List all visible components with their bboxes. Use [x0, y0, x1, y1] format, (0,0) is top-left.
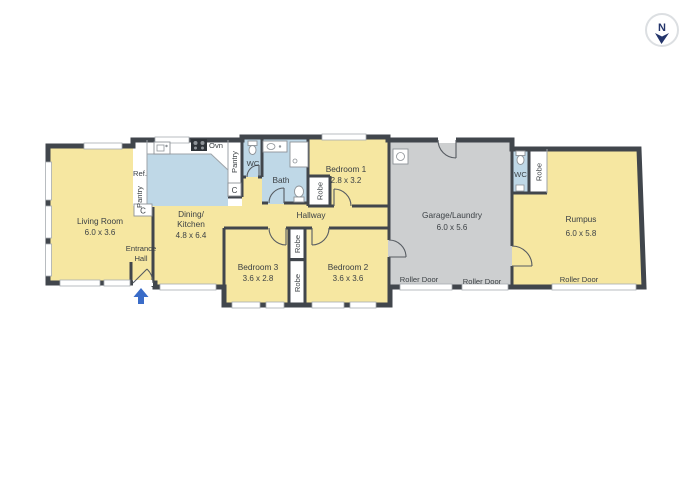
- robe-label: Robe: [293, 274, 302, 292]
- toilet-icon: [294, 186, 304, 202]
- shower-icon: [290, 142, 308, 167]
- entrance-hall-label: Entrance: [126, 244, 156, 253]
- toilet-icon: [248, 141, 257, 155]
- entrance-hall-label: Hall: [134, 254, 147, 263]
- laundry-tub-icon: [393, 149, 408, 164]
- window: [160, 284, 216, 290]
- cupboard-label: C: [232, 186, 238, 195]
- fridge-label: Ref.: [133, 169, 147, 178]
- footer: BARFOOT THOMPSON & 495 Great South Road,…: [0, 445, 700, 500]
- roller-door-label: Roller Door: [463, 277, 502, 286]
- window: [60, 280, 100, 286]
- rumpus-label: Rumpus: [566, 214, 597, 224]
- robe-label: Robe: [535, 163, 544, 181]
- oven-label: Ovn: [209, 141, 223, 150]
- window: [350, 302, 376, 308]
- living-room-dims: 6.0 x 3.6: [85, 228, 116, 237]
- kitchen-sink-icon: [154, 142, 170, 154]
- bath-vanity-icon: [263, 141, 287, 152]
- bedroom2-dims: 3.6 x 3.6: [333, 274, 364, 283]
- floorplan-canvas: Living Room 6.0 x 3.6 Entrance Hall Dini…: [0, 0, 700, 445]
- wc-label: WC: [247, 159, 260, 168]
- bedroom3-dims: 3.6 x 2.8: [243, 274, 274, 283]
- wc-label: WC: [514, 170, 527, 179]
- window: [312, 302, 344, 308]
- window: [46, 244, 52, 276]
- hallway-label: Hallway: [296, 210, 326, 220]
- window: [104, 280, 130, 286]
- bedroom3-label: Bedroom 3: [238, 262, 279, 272]
- cooktop-icon: [191, 139, 207, 151]
- dining-kitchen-label: Kitchen: [177, 219, 205, 229]
- bath-label: Bath: [272, 175, 289, 185]
- bedroom1-dims: 2.8 x 3.2: [331, 176, 362, 185]
- garage-side-door-opening: [438, 137, 456, 143]
- bedroom2-label: Bedroom 2: [328, 262, 369, 272]
- window: [46, 162, 52, 200]
- kitchen-floor: [147, 154, 228, 206]
- window: [46, 206, 52, 238]
- roller-door-opening: [400, 284, 452, 290]
- dining-kitchen-dims: 4.8 x 6.4: [176, 231, 207, 240]
- window: [232, 302, 260, 308]
- bedroom1-label: Bedroom 1: [326, 164, 367, 174]
- dining-kitchen-label: Dining/: [178, 209, 205, 219]
- compass-north-indicator: N: [646, 14, 678, 46]
- window: [266, 302, 284, 308]
- living-room-label: Living Room: [77, 216, 123, 226]
- window: [84, 143, 122, 149]
- roller-door-label: Roller Door: [400, 275, 439, 284]
- floorplan-page: Living Room 6.0 x 3.6 Entrance Hall Dini…: [0, 0, 700, 500]
- garage-dims: 6.0 x 5.6: [437, 223, 468, 232]
- entry-arrow-icon: [134, 288, 149, 304]
- roller-door-opening: [552, 284, 636, 290]
- robe-label: Robe: [316, 182, 325, 200]
- compass-n-label: N: [658, 22, 666, 34]
- entry-door-opening: [133, 280, 153, 286]
- robe-label: Robe: [293, 235, 302, 253]
- pantry-label: Pantry: [135, 186, 144, 208]
- garage-label: Garage/Laundry: [422, 210, 483, 220]
- roller-door-label: Roller Door: [560, 275, 599, 284]
- pantry-label: Pantry: [230, 151, 239, 173]
- window: [322, 134, 366, 140]
- rumpus-dims: 6.0 x 5.8: [566, 229, 597, 238]
